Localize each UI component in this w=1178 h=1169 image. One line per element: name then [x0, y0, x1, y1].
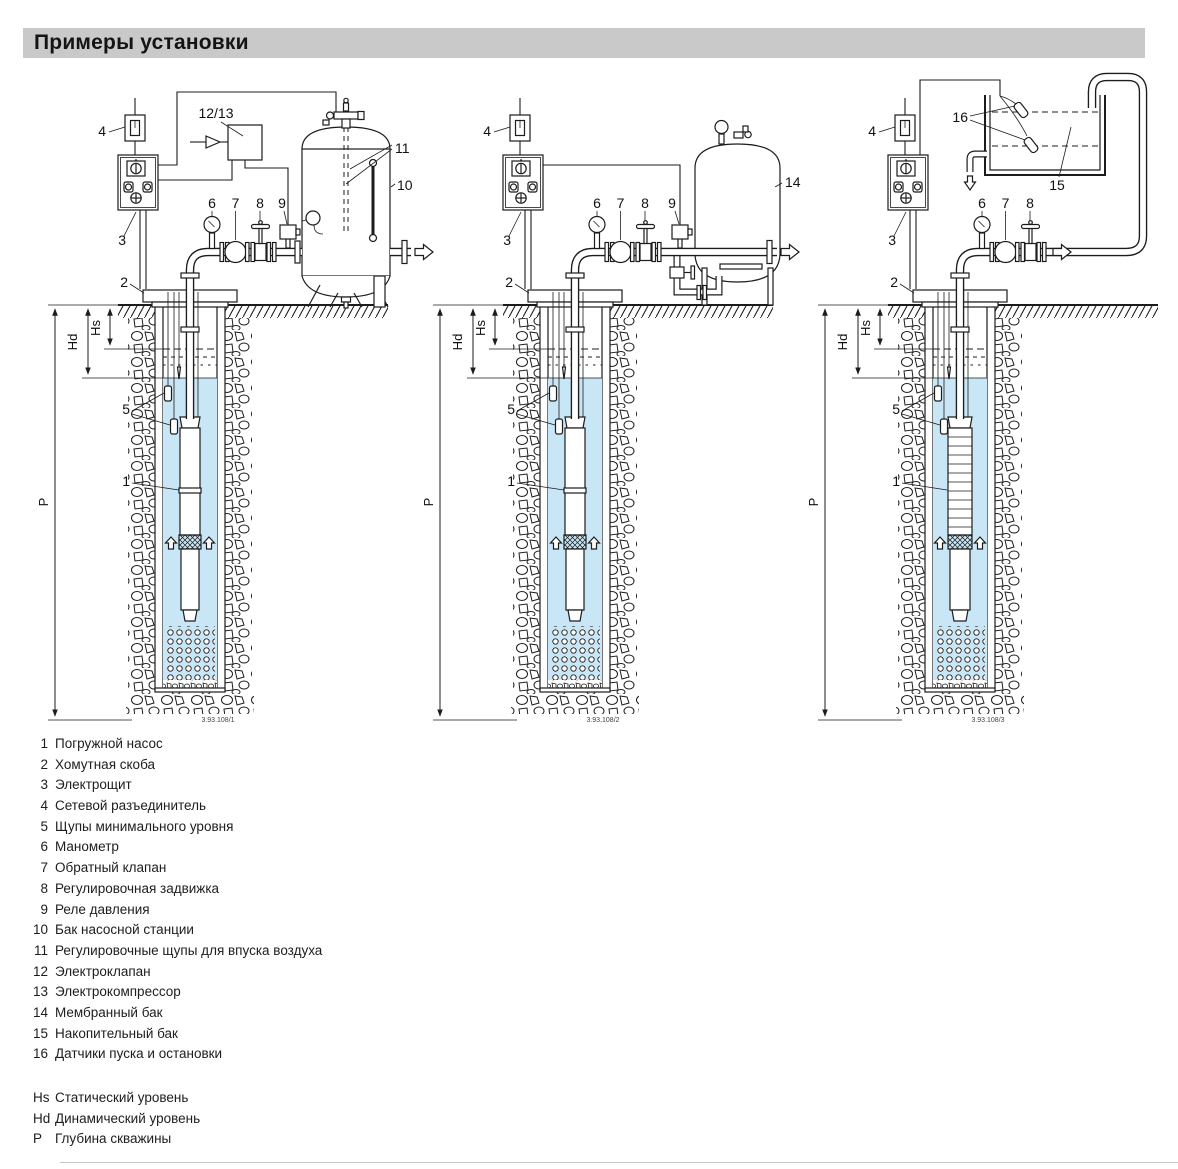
callout-6: 6 — [208, 195, 216, 211]
dim-label-p: P — [421, 498, 436, 507]
callout-1: 1 — [122, 473, 130, 489]
dim-label-p: P — [806, 498, 821, 507]
callout-2: 2 — [505, 274, 513, 290]
legend-item: 11Регулировочные щупы для впуска воздуха — [33, 941, 322, 962]
legend-item: 1Погружной насос — [33, 734, 322, 755]
legend-item: 3Электрощит — [33, 775, 322, 796]
legend-item: 7Обратный клапан — [33, 858, 322, 879]
callout-3: 3 — [888, 232, 896, 248]
levels-legend: HsСтатический уровень HdДинамический уро… — [33, 1088, 200, 1150]
callout-4: 4 — [98, 123, 106, 139]
dim-label-hd: Hd — [65, 334, 80, 351]
levels-item: PГлубина скважины — [33, 1129, 200, 1150]
tank-pressure-gauge — [306, 211, 320, 225]
control-wiring-2 — [543, 165, 680, 225]
callout-2: 2 — [890, 274, 898, 290]
legend-item: 8Регулировочная задвижка — [33, 879, 322, 900]
callout-9: 9 — [668, 195, 676, 211]
levels-item: HsСтатический уровень — [33, 1088, 200, 1109]
callout-14: 14 — [785, 174, 801, 190]
callout-10: 10 — [397, 177, 413, 193]
solenoid-compressor-box — [228, 125, 262, 160]
callout-1: 1 — [507, 473, 515, 489]
callout-3: 3 — [503, 232, 511, 248]
callout-4: 4 — [483, 123, 491, 139]
callout-6: 6 — [593, 195, 601, 211]
dim-label-hs: Hs — [473, 320, 488, 336]
levels-item: HdДинамический уровень — [33, 1109, 200, 1130]
installation-diagram-1: 4 12/13 11 10 3 6 7 8 9 2 5 1 Hs Hd P 3.… — [36, 92, 433, 724]
callout-8: 8 — [641, 195, 649, 211]
installation-diagram-3: 4 3 6 7 8 16 15 2 5 1 Hs Hd P 3.93.108/3 — [806, 77, 1158, 724]
legend-item: 15Накопительный бак — [33, 1024, 322, 1045]
callout-11: 11 — [395, 140, 410, 156]
dim-label-hd: Hd — [450, 334, 465, 351]
storage-tank — [985, 95, 1105, 175]
legend-item: 12Электроклапан — [33, 962, 322, 983]
legend-item: 16Датчики пуска и остановки — [33, 1044, 322, 1065]
callout-12-13: 12/13 — [198, 105, 233, 121]
bottom-rule — [60, 1162, 1178, 1163]
callout-6: 6 — [978, 195, 986, 211]
legend-item: 14Мембранный бак — [33, 1003, 322, 1024]
pump-station-tank — [302, 98, 390, 308]
legend-item: 10Бак насосной станции — [33, 920, 322, 941]
callout-2: 2 — [120, 274, 128, 290]
installation-diagram-2: 4 3 6 7 8 9 14 2 5 1 Hs Hd P 3.93.108/2 — [421, 98, 801, 724]
dim-label-hs: Hs — [88, 320, 103, 336]
callout-7: 7 — [232, 195, 240, 211]
page-title: Примеры установки — [23, 28, 1145, 58]
drawing-number-2: 3.93.108/2 — [586, 717, 619, 724]
callout-1: 1 — [892, 473, 900, 489]
tank-top-valve — [334, 112, 358, 119]
air-inlet-arrow-icon — [206, 136, 220, 148]
manual-page: Примеры установки — [0, 0, 1178, 1169]
drawing-number-1: 3.93.108/1 — [201, 717, 234, 724]
dim-label-hd: Hd — [835, 334, 850, 351]
legend-item: 5Щупы минимального уровня — [33, 817, 322, 838]
tank-pressure-gauge — [715, 121, 728, 134]
legend-item: 4Сетевой разъединитель — [33, 796, 322, 817]
callout-5: 5 — [892, 401, 900, 417]
dim-label-p: P — [36, 498, 51, 507]
membrane-tank — [695, 121, 780, 306]
legend-item: 6Манометр — [33, 837, 322, 858]
start-stop-sensor — [1023, 136, 1039, 154]
legend-item: 9Реле давления — [33, 900, 322, 921]
callout-3: 3 — [118, 232, 126, 248]
legend-item: 2Хомутная скоба — [33, 755, 322, 776]
callout-5: 5 — [507, 401, 515, 417]
section-title-bar: Примеры установки — [23, 28, 1145, 58]
callout-5: 5 — [122, 401, 130, 417]
callout-15: 15 — [1049, 177, 1065, 193]
dim-label-hs: Hs — [858, 320, 873, 336]
callout-8: 8 — [1026, 195, 1034, 211]
installation-diagrams-figure: 4 12/13 11 10 3 6 7 8 9 2 5 1 Hs Hd P 3.… — [0, 70, 1178, 730]
callout-4: 4 — [868, 123, 876, 139]
callout-7: 7 — [617, 195, 625, 211]
drawing-number-3: 3.93.108/3 — [971, 717, 1004, 724]
callout-8: 8 — [256, 195, 264, 211]
callout-9: 9 — [278, 195, 286, 211]
branch-valve — [670, 267, 684, 278]
callout-7: 7 — [1002, 195, 1010, 211]
legend: 1Погружной насос 2Хомутная скоба 3Электр… — [33, 734, 322, 1065]
legend-item: 13Электрокомпрессор — [33, 982, 322, 1003]
callout-16: 16 — [952, 109, 968, 125]
